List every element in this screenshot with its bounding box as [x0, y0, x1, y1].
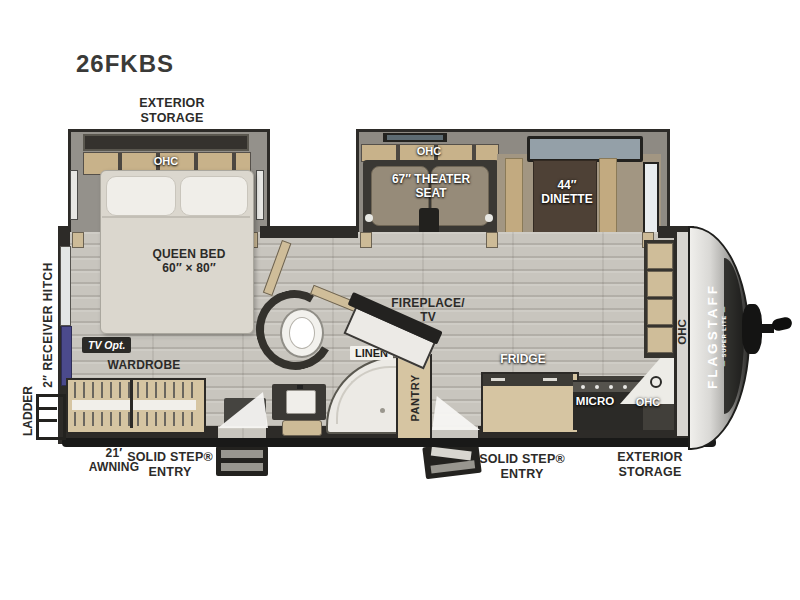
dinette-skylight [527, 136, 643, 162]
pantry-label: PANTRY [408, 375, 420, 422]
bath-stool [282, 420, 322, 436]
kitchen-ohc-label: OHC [620, 396, 676, 409]
bedroom-slide-window-left [70, 170, 78, 220]
ladder-graphic [36, 394, 66, 440]
floorplan-canvas: 26FKBS EXTERIOR STORAGE OHC OHC 67″ THEA… [0, 0, 800, 600]
wardrobe-hangers-bottom [74, 412, 194, 426]
burner [623, 385, 627, 389]
queen-bed-label: QUEEN BED 60″ × 80″ [126, 247, 252, 275]
slide-bracket [72, 232, 84, 248]
theater-cupholder-right [485, 214, 493, 222]
pillow-left [106, 176, 176, 216]
toilet [280, 308, 324, 358]
wardrobe-shelf [72, 400, 196, 410]
theater-vent [383, 133, 447, 142]
toilet-bowl [289, 317, 315, 349]
wardrobe [66, 378, 206, 434]
front-ohc-label: OHC [676, 319, 688, 345]
brand-mark: FLAGSTAFF — SUPER LITE — [694, 244, 738, 428]
wardrobe-hangers-top [74, 382, 194, 398]
brand-subtitle: — SUPER LITE — [721, 283, 727, 389]
fridge-label: FRIDGE [473, 352, 573, 366]
living-ohc-label: OHC [399, 145, 459, 158]
bedroom-ohc-label: OHC [129, 155, 203, 168]
ladder-rung [39, 419, 57, 422]
shower-drain [380, 408, 385, 413]
burner [609, 385, 613, 389]
pillow-right [180, 176, 248, 216]
step-tread [431, 460, 476, 473]
cabinet-door [647, 271, 673, 297]
slide-bracket [486, 232, 498, 248]
dinette-label: 44″ DINETTE [519, 178, 615, 207]
bedroom-slide-window-right [256, 170, 264, 220]
step-tread [431, 447, 472, 461]
wardrobe-divider [130, 380, 133, 428]
top-wall-mid [260, 226, 358, 238]
burner [581, 385, 585, 389]
brand-name: FLAGSTAFF [705, 283, 720, 389]
bed-fold-line [102, 216, 250, 218]
fridge-handle [491, 378, 505, 381]
exterior-storage-rear-label: EXTERIOR STORAGE [108, 96, 236, 126]
cabinet-door [647, 243, 673, 269]
bath-faucet [297, 385, 303, 389]
theater-seat-console [419, 208, 439, 234]
step-tread [221, 450, 263, 458]
entry-rear-steps [216, 446, 268, 476]
model-title: 26FKBS [76, 50, 174, 78]
theater-cupholder-left [365, 214, 373, 222]
theater-vent-glass [387, 135, 443, 140]
step-tread [221, 463, 263, 471]
theater-seat-label: 67″ THEATER SEAT [367, 172, 495, 201]
ladder-rung [39, 407, 57, 410]
entry-front-label: SOLID STEP® ENTRY [470, 452, 574, 482]
ladder-label: LADDER [21, 386, 35, 436]
dinette-window [643, 162, 659, 238]
receiver-hitch-label: 2″ RECEIVER HITCH [41, 262, 55, 388]
living-slideout: OHC 67″ THEATER SEAT 44″ DINETTE [356, 129, 670, 244]
fridge-handle [543, 378, 557, 381]
slide-bracket [360, 232, 372, 248]
tv-option-badge: TV Opt. [82, 337, 131, 353]
exterior-storage-front-label: EXTERIOR STORAGE [598, 450, 702, 480]
wardrobe-label: WARDROBE [92, 358, 196, 372]
microwave-label: MICRO [564, 395, 626, 409]
hitch-handle [771, 316, 793, 332]
burner [595, 385, 599, 389]
exterior-storage-compartment [83, 134, 249, 151]
kitchen-faucet [650, 376, 662, 388]
bath-vanity [272, 384, 326, 420]
awning-rail [62, 438, 716, 447]
bath-sink [286, 390, 316, 414]
entry-rear-label: SOLID STEP® ENTRY [118, 450, 222, 480]
